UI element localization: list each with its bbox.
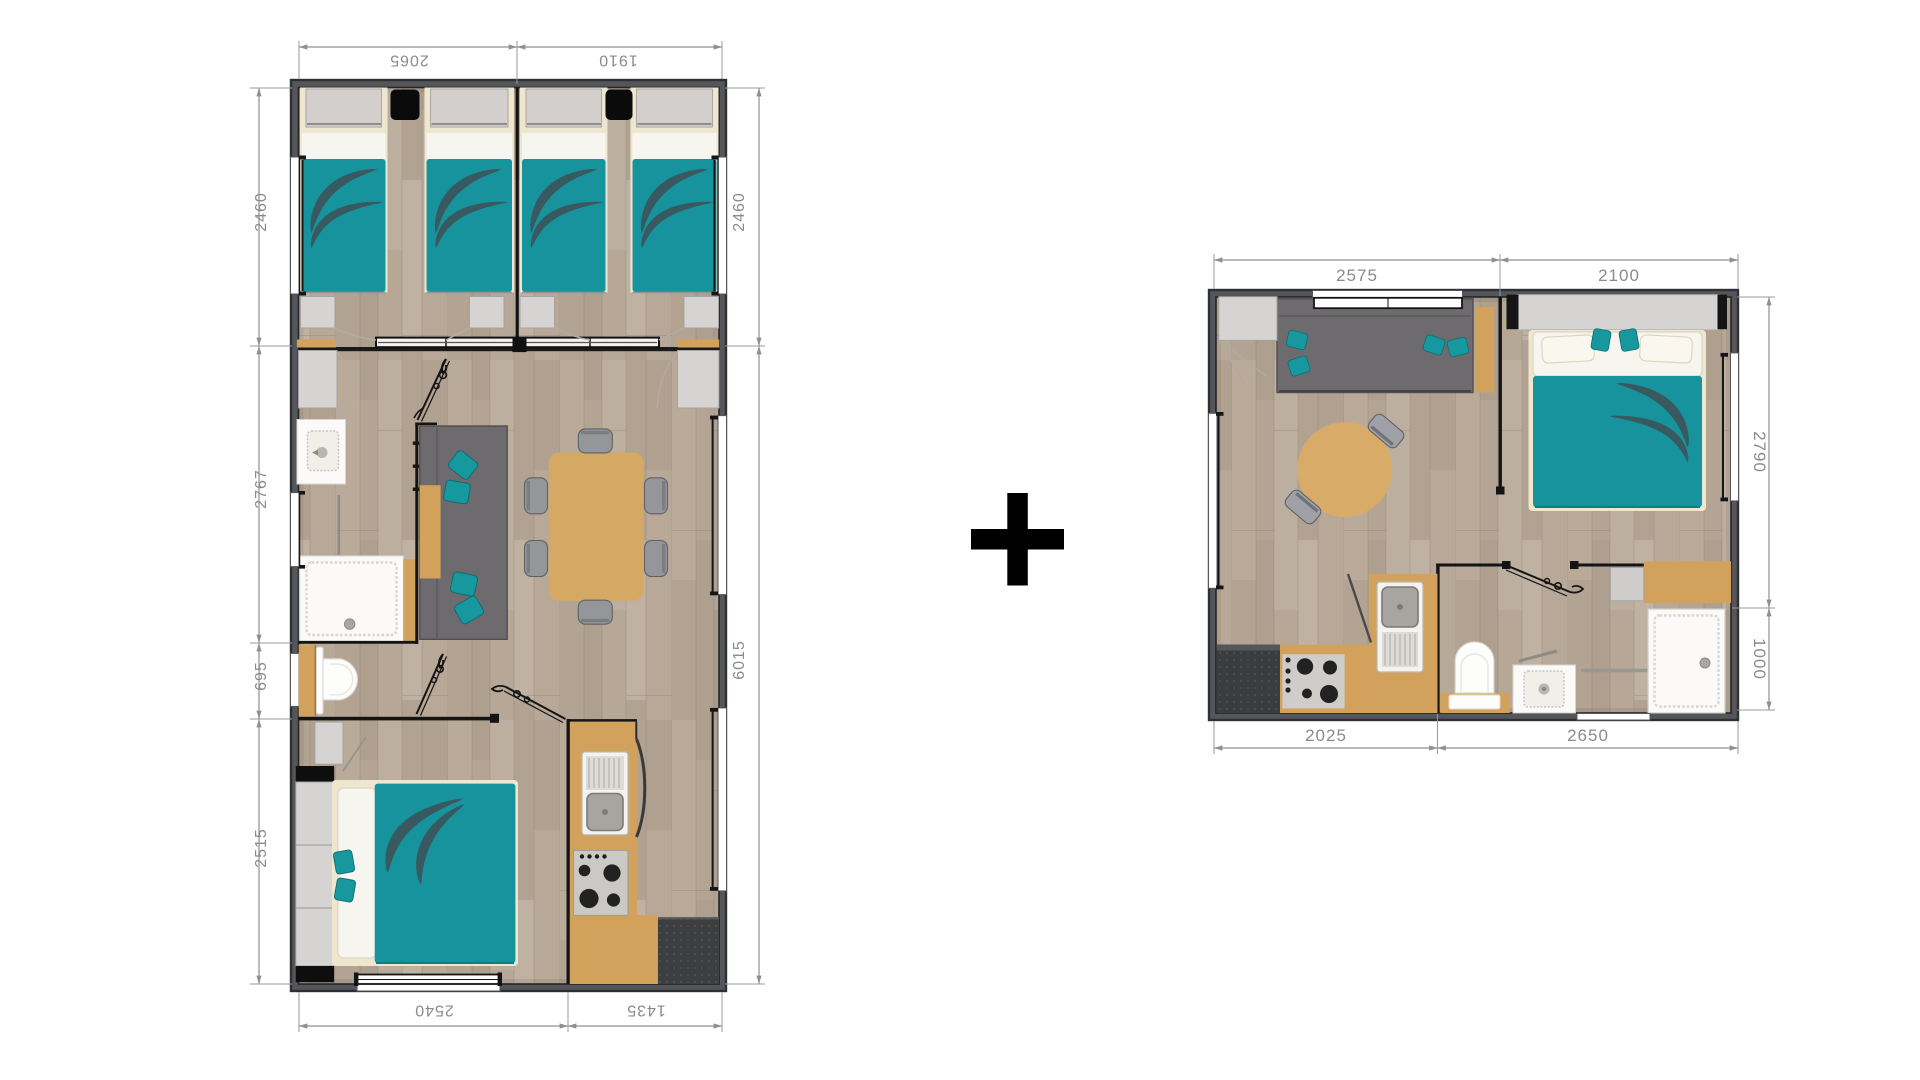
svg-text:2650: 2650 [1567,726,1609,745]
svg-text:2065: 2065 [389,52,429,69]
svg-text:6015: 6015 [731,640,748,680]
svg-text:2790: 2790 [1750,431,1769,473]
svg-text:2460: 2460 [731,192,748,232]
svg-text:2540: 2540 [414,1002,454,1019]
svg-text:1910: 1910 [598,52,638,69]
svg-text:2767: 2767 [253,469,270,509]
svg-text:2460: 2460 [253,192,270,232]
svg-text:2100: 2100 [1598,266,1640,285]
svg-text:695: 695 [253,661,270,691]
svg-text:2515: 2515 [253,828,270,868]
svg-text:2575: 2575 [1336,266,1378,285]
svg-text:1000: 1000 [1750,638,1769,680]
svg-text:1435: 1435 [626,1002,666,1019]
svg-text:2025: 2025 [1305,726,1347,745]
